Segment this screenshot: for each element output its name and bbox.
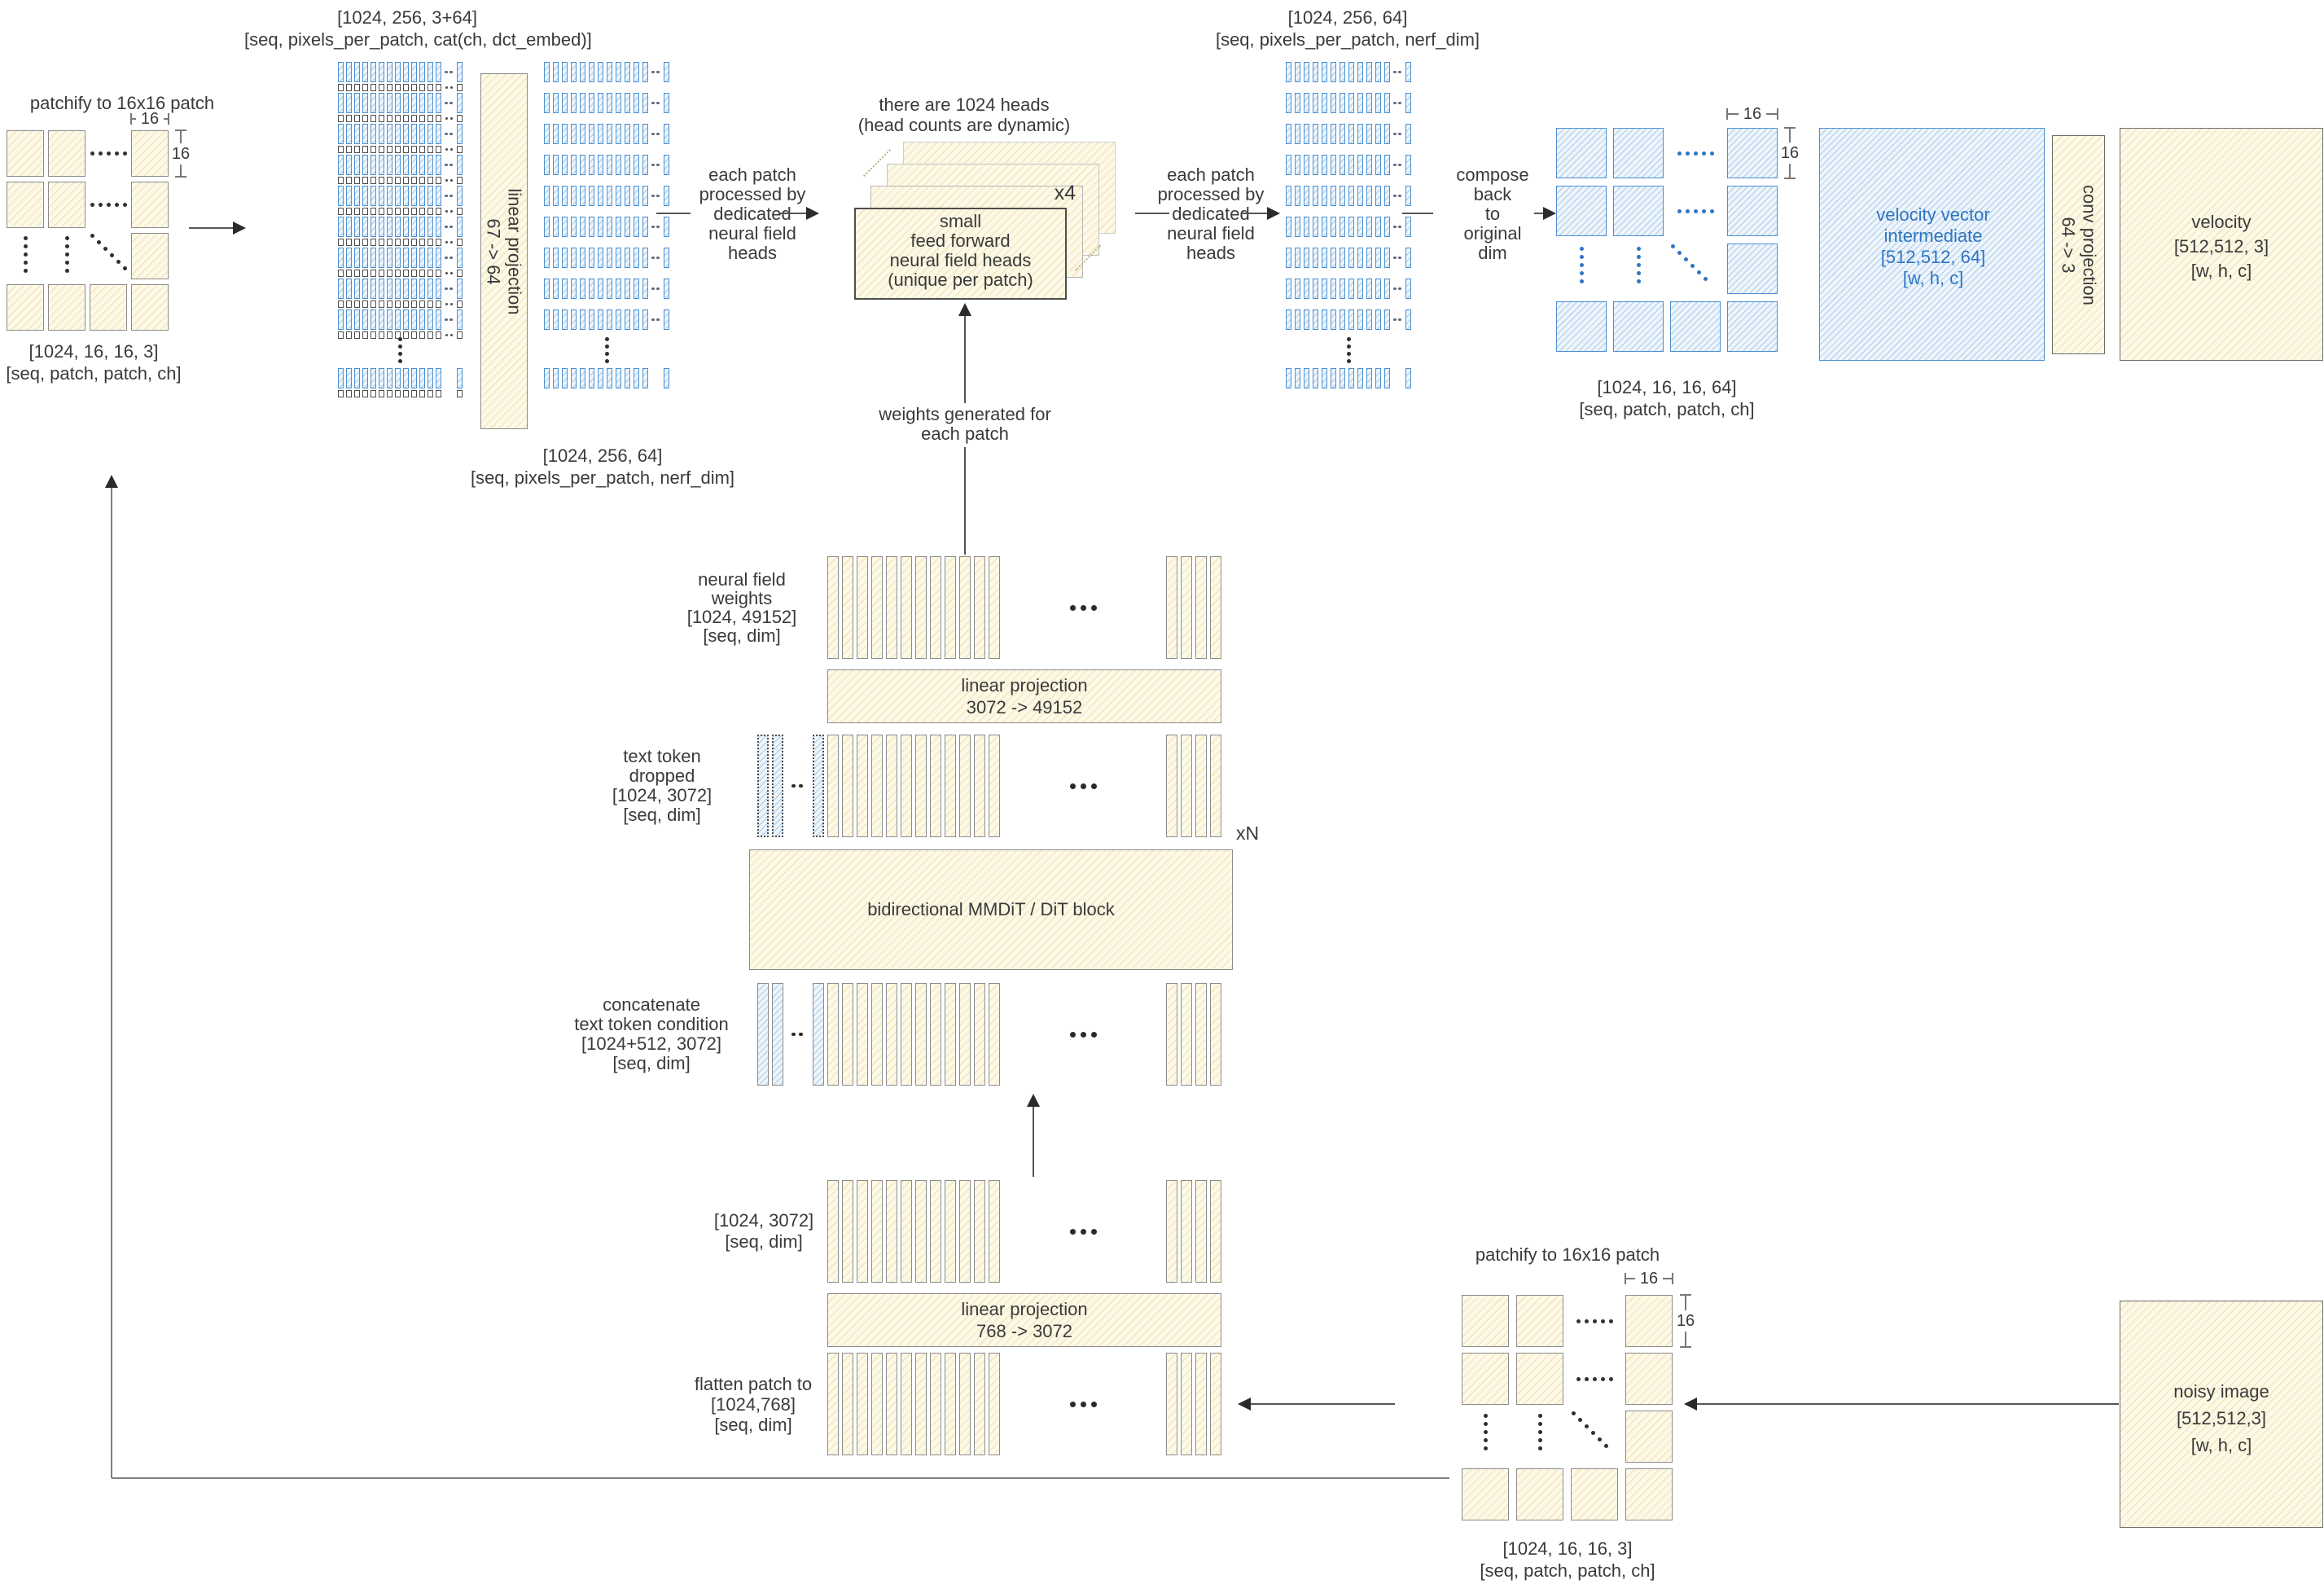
sequence-token-bar (1210, 983, 1221, 1086)
token-bar (1384, 186, 1390, 206)
dct-embed-square (379, 390, 384, 397)
dot (1091, 1032, 1097, 1038)
image-patch (1556, 301, 1607, 352)
token-bar (362, 93, 368, 113)
token-bar (598, 368, 603, 388)
token-bar (1348, 62, 1354, 82)
token-bar (403, 248, 409, 268)
token-bar (1384, 217, 1390, 237)
token-bar (346, 155, 352, 175)
sequence-token-bar (959, 983, 971, 1086)
shape-line: [1024, 16, 16, 3] (1478, 1538, 1657, 1560)
token-bar (419, 155, 425, 175)
arrowhead-r (1543, 207, 1556, 220)
connector-line (964, 447, 966, 555)
dct-embed-square (419, 146, 425, 153)
dims-line: [seq, patch, patch, ch] (1478, 1560, 1657, 1582)
token-bar (387, 217, 392, 237)
dimension-value: 16 (1672, 1313, 1699, 1329)
token-bar (403, 279, 409, 299)
token-bar (1366, 155, 1372, 175)
dot (1538, 1438, 1542, 1442)
dot (449, 226, 453, 229)
token-bar (1348, 93, 1354, 113)
connector-line (1033, 1107, 1034, 1177)
dot (1580, 279, 1584, 283)
token-bar (1375, 93, 1381, 113)
token-bar (362, 279, 368, 299)
dot (1347, 344, 1351, 349)
token-bar (544, 124, 550, 144)
dot (449, 133, 453, 136)
sequence-token-bar (871, 1180, 883, 1283)
stack-line: neural field heads (854, 251, 1067, 270)
token-bar (562, 309, 568, 330)
token-bar (1375, 124, 1381, 144)
image-patch (1727, 186, 1778, 236)
token-bar (616, 186, 621, 206)
dot (1538, 1422, 1542, 1426)
dct-embed-square (436, 239, 441, 246)
sequence-token-bar (974, 556, 985, 659)
token-bar (664, 248, 669, 268)
token-bar (411, 62, 417, 82)
dot (445, 148, 448, 151)
token-bar (1357, 186, 1363, 206)
dot (1393, 164, 1397, 167)
token-bar (1286, 124, 1291, 144)
token-bar (616, 309, 621, 330)
dot (1710, 209, 1714, 213)
flow-line: each patch (671, 165, 834, 185)
token-bar (403, 155, 409, 175)
sequence-token-bar (1166, 1180, 1177, 1283)
token-bar (1322, 124, 1327, 144)
dot (1637, 255, 1641, 259)
token-bar (580, 155, 585, 175)
dct-embed-square (436, 331, 441, 339)
token-bar (411, 248, 417, 268)
dct-embed-square (338, 390, 344, 397)
note-line: back (1427, 185, 1558, 204)
token-bar (1304, 155, 1309, 175)
token-bar (544, 62, 550, 82)
token-bar (419, 124, 425, 144)
sequence-token-bar (945, 556, 956, 659)
dot (1637, 279, 1641, 283)
token-bar (428, 248, 433, 268)
token-bar (362, 309, 368, 330)
connector-line (1789, 128, 1791, 143)
image-patch (1462, 1353, 1509, 1405)
sequence-token-bar (930, 735, 941, 837)
dot (1070, 605, 1076, 611)
token-bar (544, 368, 550, 388)
token-bar (1405, 217, 1411, 237)
dct-embed-square (371, 146, 376, 153)
dot (398, 344, 402, 349)
connector-line (112, 1477, 1449, 1479)
token-bar (1366, 248, 1372, 268)
label-line: text token condition (546, 1015, 757, 1034)
dot (123, 203, 127, 207)
token-bar (387, 155, 392, 175)
dct-embed-square (346, 146, 352, 153)
dot (65, 236, 69, 240)
token-bar (664, 124, 669, 144)
dct-embed-square (419, 239, 425, 246)
dot (1347, 337, 1351, 341)
dct-embed-square (387, 390, 392, 397)
connector-line (1243, 213, 1267, 214)
dot (1347, 352, 1351, 356)
dct-embed-square (338, 301, 344, 308)
token-bar (354, 124, 360, 144)
token-bar (436, 248, 441, 268)
image-patch (7, 130, 44, 177)
dct-embed-square (387, 84, 392, 91)
dct-embed-square (457, 270, 463, 277)
multiplier: x4 (1041, 182, 1090, 204)
dot (1578, 1418, 1582, 1422)
token-bar (1286, 279, 1291, 299)
dot (1398, 102, 1401, 105)
dct-embed-square (403, 115, 409, 122)
token-bar (395, 124, 401, 144)
token-bar (1405, 93, 1411, 113)
dot (450, 241, 453, 244)
dct-embed-square (354, 177, 360, 184)
dot (1070, 1402, 1076, 1407)
token-bar (562, 248, 568, 268)
token-bar (1313, 368, 1318, 388)
image-patch (1462, 1295, 1509, 1347)
token-bar (1295, 93, 1300, 113)
dot (449, 102, 453, 105)
dct-embed-square (379, 84, 384, 91)
arrowhead-u (958, 303, 971, 316)
token-bar (580, 368, 585, 388)
dct-embed-square (428, 208, 433, 215)
dct-embed-square (411, 84, 417, 91)
token-bar (1313, 93, 1318, 113)
label-line: neural field (644, 570, 840, 589)
dot (1393, 318, 1397, 322)
sequence-token-bar (827, 983, 839, 1086)
dct-embed-square (395, 239, 401, 246)
token-bar (346, 124, 352, 144)
flow-line: neural field (1129, 224, 1292, 244)
token-bar (1322, 62, 1327, 82)
token-bar (387, 248, 392, 268)
token-bar (1340, 93, 1345, 113)
token-bar (362, 124, 368, 144)
dot (1694, 209, 1698, 213)
token-bar (1304, 217, 1309, 237)
token-bar (616, 93, 621, 113)
token-bar (1375, 62, 1381, 82)
token-bar (664, 309, 669, 330)
token-bar (634, 368, 639, 388)
token-bar (1322, 186, 1327, 206)
dct-embed-square (395, 177, 401, 184)
token-bar (1322, 248, 1327, 268)
token-bar (371, 368, 376, 388)
sequence-token-bar (886, 556, 897, 659)
token-bar (1357, 62, 1363, 82)
token-bar (1295, 217, 1300, 237)
token-bar (607, 186, 612, 206)
dot (123, 151, 127, 156)
token-bar (419, 279, 425, 299)
dot (1585, 1424, 1589, 1428)
dot (1609, 1377, 1613, 1381)
token-bar (1357, 368, 1363, 388)
linear-projection-3072-49152-label: linear projection 3072 -> 49152 (827, 674, 1221, 718)
token-bar (625, 155, 630, 175)
token-bar (354, 186, 360, 206)
dot (1070, 1032, 1076, 1038)
image-patch (1625, 1353, 1673, 1405)
token-bar (642, 217, 648, 237)
token-bar (354, 62, 360, 82)
dct-embed-square (338, 239, 344, 246)
token-bar (346, 93, 352, 113)
image-patch (1670, 301, 1721, 352)
token-bar (544, 248, 550, 268)
arrowhead-u (1027, 1094, 1040, 1107)
token-bar (379, 124, 384, 144)
dct-embed-square (395, 390, 401, 397)
dot (605, 359, 609, 363)
token-bar (379, 186, 384, 206)
token-bar (403, 93, 409, 113)
sequence-token-bar (974, 735, 985, 837)
label-line: [w, h, c] (2132, 1432, 2311, 1459)
dot (107, 203, 111, 207)
dct-embed-square (419, 331, 425, 339)
sequence-token-bar (1181, 556, 1192, 659)
token-bar (562, 155, 568, 175)
dct-embed-square (403, 331, 409, 339)
token-bar (436, 124, 441, 144)
token-bar (1304, 279, 1309, 299)
dct-embed-square (411, 270, 417, 277)
image-patch (90, 284, 127, 331)
token-bar (625, 279, 630, 299)
token-bar (1286, 368, 1291, 388)
dct-embed-square (371, 331, 376, 339)
dct-embed-square (346, 84, 352, 91)
dot (651, 257, 655, 260)
token-bar (411, 155, 417, 175)
token-bar (642, 124, 648, 144)
sequence-token-bar (1166, 1353, 1177, 1455)
dct-embed-square (387, 146, 392, 153)
dot (656, 102, 660, 105)
dct-embed-square (346, 208, 352, 215)
image-patch (7, 284, 44, 331)
token-bar (395, 155, 401, 175)
token-bar (1331, 186, 1336, 206)
flow-line: processed by (671, 185, 834, 204)
token-bar (1340, 368, 1345, 388)
dot (1593, 1377, 1597, 1381)
token-bar (562, 124, 568, 144)
dct-embed-square (436, 270, 441, 277)
dims-line: [seq, pixels_per_patch, cat(ch, dct_embe… (244, 29, 570, 50)
token-bar (1375, 248, 1381, 268)
dot (1091, 1229, 1097, 1235)
label-line: velocity (2132, 210, 2311, 235)
dct-embed-square (387, 331, 392, 339)
token-bar (428, 62, 433, 82)
token-bar (571, 309, 577, 330)
dot (1576, 1319, 1581, 1323)
dot (1081, 783, 1086, 789)
dct-embed-square (395, 208, 401, 215)
token-bar (1348, 155, 1354, 175)
sequence-token-bar (1195, 983, 1207, 1086)
dct-embed-square (371, 84, 376, 91)
token-bar (379, 155, 384, 175)
dot (1393, 257, 1397, 260)
sequence-token-bar (915, 983, 927, 1086)
label-line: [seq, dim] (664, 1415, 843, 1435)
token-bar (553, 309, 559, 330)
token-bar (571, 217, 577, 237)
label-line: weights (644, 589, 840, 608)
sequence-token-bar (842, 1353, 853, 1455)
dct-embed-square (387, 115, 392, 122)
patchify-title-top-left: patchify to 16x16 patch (16, 93, 228, 114)
token-bar (1405, 248, 1411, 268)
dot (1601, 1377, 1605, 1381)
nerf-token-shape-label: [1024, 256, 64] [seq, pixels_per_patch, … (440, 445, 765, 489)
dot (24, 261, 28, 265)
dot (605, 352, 609, 356)
token-bar (1340, 248, 1345, 268)
token-bar (338, 368, 344, 388)
token-bar (562, 93, 568, 113)
stack-line: small (854, 212, 1067, 231)
dot (445, 287, 448, 291)
label-line: [1024, 3072] (682, 1210, 845, 1231)
proj-map: 64 -> 3 (2058, 136, 2079, 355)
token-bar (571, 155, 577, 175)
image-patch (1571, 1468, 1618, 1520)
nf-head-stack-label: small feed forward neural field heads (u… (854, 212, 1067, 290)
token-bar (1295, 279, 1300, 299)
dot (1598, 1437, 1602, 1441)
note-line: each patch (867, 424, 1063, 444)
connector-line (656, 213, 691, 214)
token-bar (395, 217, 401, 237)
dct-embed-square (457, 390, 463, 397)
sequence-token-bar (1195, 1353, 1207, 1455)
linear-projection-67-64-label: linear projection 67 -> 64 (483, 74, 525, 430)
token-bar (642, 93, 648, 113)
connector-line (180, 165, 182, 178)
dct-embed-square (338, 84, 344, 91)
dot (1398, 71, 1401, 74)
token-bar (436, 93, 441, 113)
sequence-token-bar (915, 1180, 927, 1283)
token-bar (395, 279, 401, 299)
sequence-token-bar (842, 556, 853, 659)
dot (449, 318, 453, 322)
image-patch (1556, 128, 1607, 178)
dct-embed-square (338, 146, 344, 153)
dct-embed-square (379, 115, 384, 122)
token-bar (544, 155, 550, 175)
dct-embed-square (362, 301, 368, 308)
token-bar (1366, 62, 1372, 82)
token-bar (379, 217, 384, 237)
connector-line (1402, 213, 1433, 214)
connector-line (1625, 1278, 1635, 1279)
token-bar (1384, 62, 1390, 82)
shape-line: [1024, 256, 64] (440, 445, 765, 467)
token-bar (571, 248, 577, 268)
token-bar (1313, 155, 1318, 175)
token-bar (428, 155, 433, 175)
token-bar (625, 93, 630, 113)
dot (1677, 209, 1682, 213)
dct-embed-square (436, 177, 441, 184)
dims-line: [seq, patch, patch, ch] (4, 362, 183, 384)
token-bar (598, 93, 603, 113)
dct-embed-square (419, 301, 425, 308)
token-bar (1331, 248, 1336, 268)
sequence-token-bar (1166, 556, 1177, 659)
dct-embed-square (379, 239, 384, 246)
token-bar (379, 368, 384, 388)
dot (450, 303, 453, 305)
image-patch (131, 130, 169, 177)
dot (651, 102, 655, 105)
dct-embed-square (371, 301, 376, 308)
token-bar (1384, 368, 1390, 388)
dct-embed-square (371, 177, 376, 184)
connector-line (1789, 164, 1791, 178)
dct-embed-square (428, 177, 433, 184)
dot (450, 272, 453, 274)
dct-embed-square (362, 84, 368, 91)
connector-line (1685, 1295, 1686, 1310)
dct-embed-square (395, 301, 401, 308)
token-bar (1366, 186, 1372, 206)
token-bar (1357, 93, 1363, 113)
label-line: [1024+512, 3072] (546, 1034, 757, 1054)
token-bar (544, 186, 550, 206)
token-bar (580, 248, 585, 268)
dct-embed-square (457, 177, 463, 184)
token-bar (580, 62, 585, 82)
token-bar (634, 62, 639, 82)
token-bar (562, 217, 568, 237)
token-bar (379, 309, 384, 330)
token-bar (1405, 279, 1411, 299)
sequence-token-bar (901, 1353, 912, 1455)
token-bar (1348, 217, 1354, 237)
dot (651, 71, 655, 74)
token-bar (362, 368, 368, 388)
dct-embed-square (395, 84, 401, 91)
token-bar (354, 309, 360, 330)
token-bar (411, 217, 417, 237)
dct-embed-square (354, 270, 360, 277)
